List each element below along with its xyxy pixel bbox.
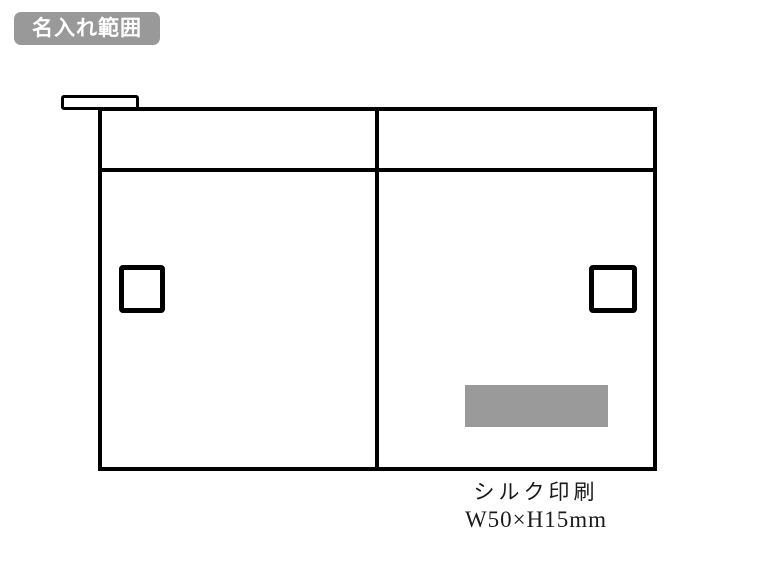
print-method-label: シルク印刷 bbox=[426, 478, 646, 506]
pouch-right-snap-button bbox=[589, 265, 637, 313]
imprint-range-badge: 名入れ範囲 bbox=[14, 12, 160, 45]
print-size-label: W50×H15mm bbox=[426, 506, 646, 534]
imprint-range-badge-label: 名入れ範囲 bbox=[32, 18, 142, 39]
pouch-left-snap-button bbox=[119, 265, 165, 313]
imprint-area-diagram: 名入れ範囲 シルク印刷 W50×H15mm bbox=[0, 0, 760, 570]
print-caption: シルク印刷 W50×H15mm bbox=[426, 478, 646, 534]
pouch-center-divider bbox=[375, 107, 379, 471]
print-area-rect bbox=[465, 385, 608, 427]
